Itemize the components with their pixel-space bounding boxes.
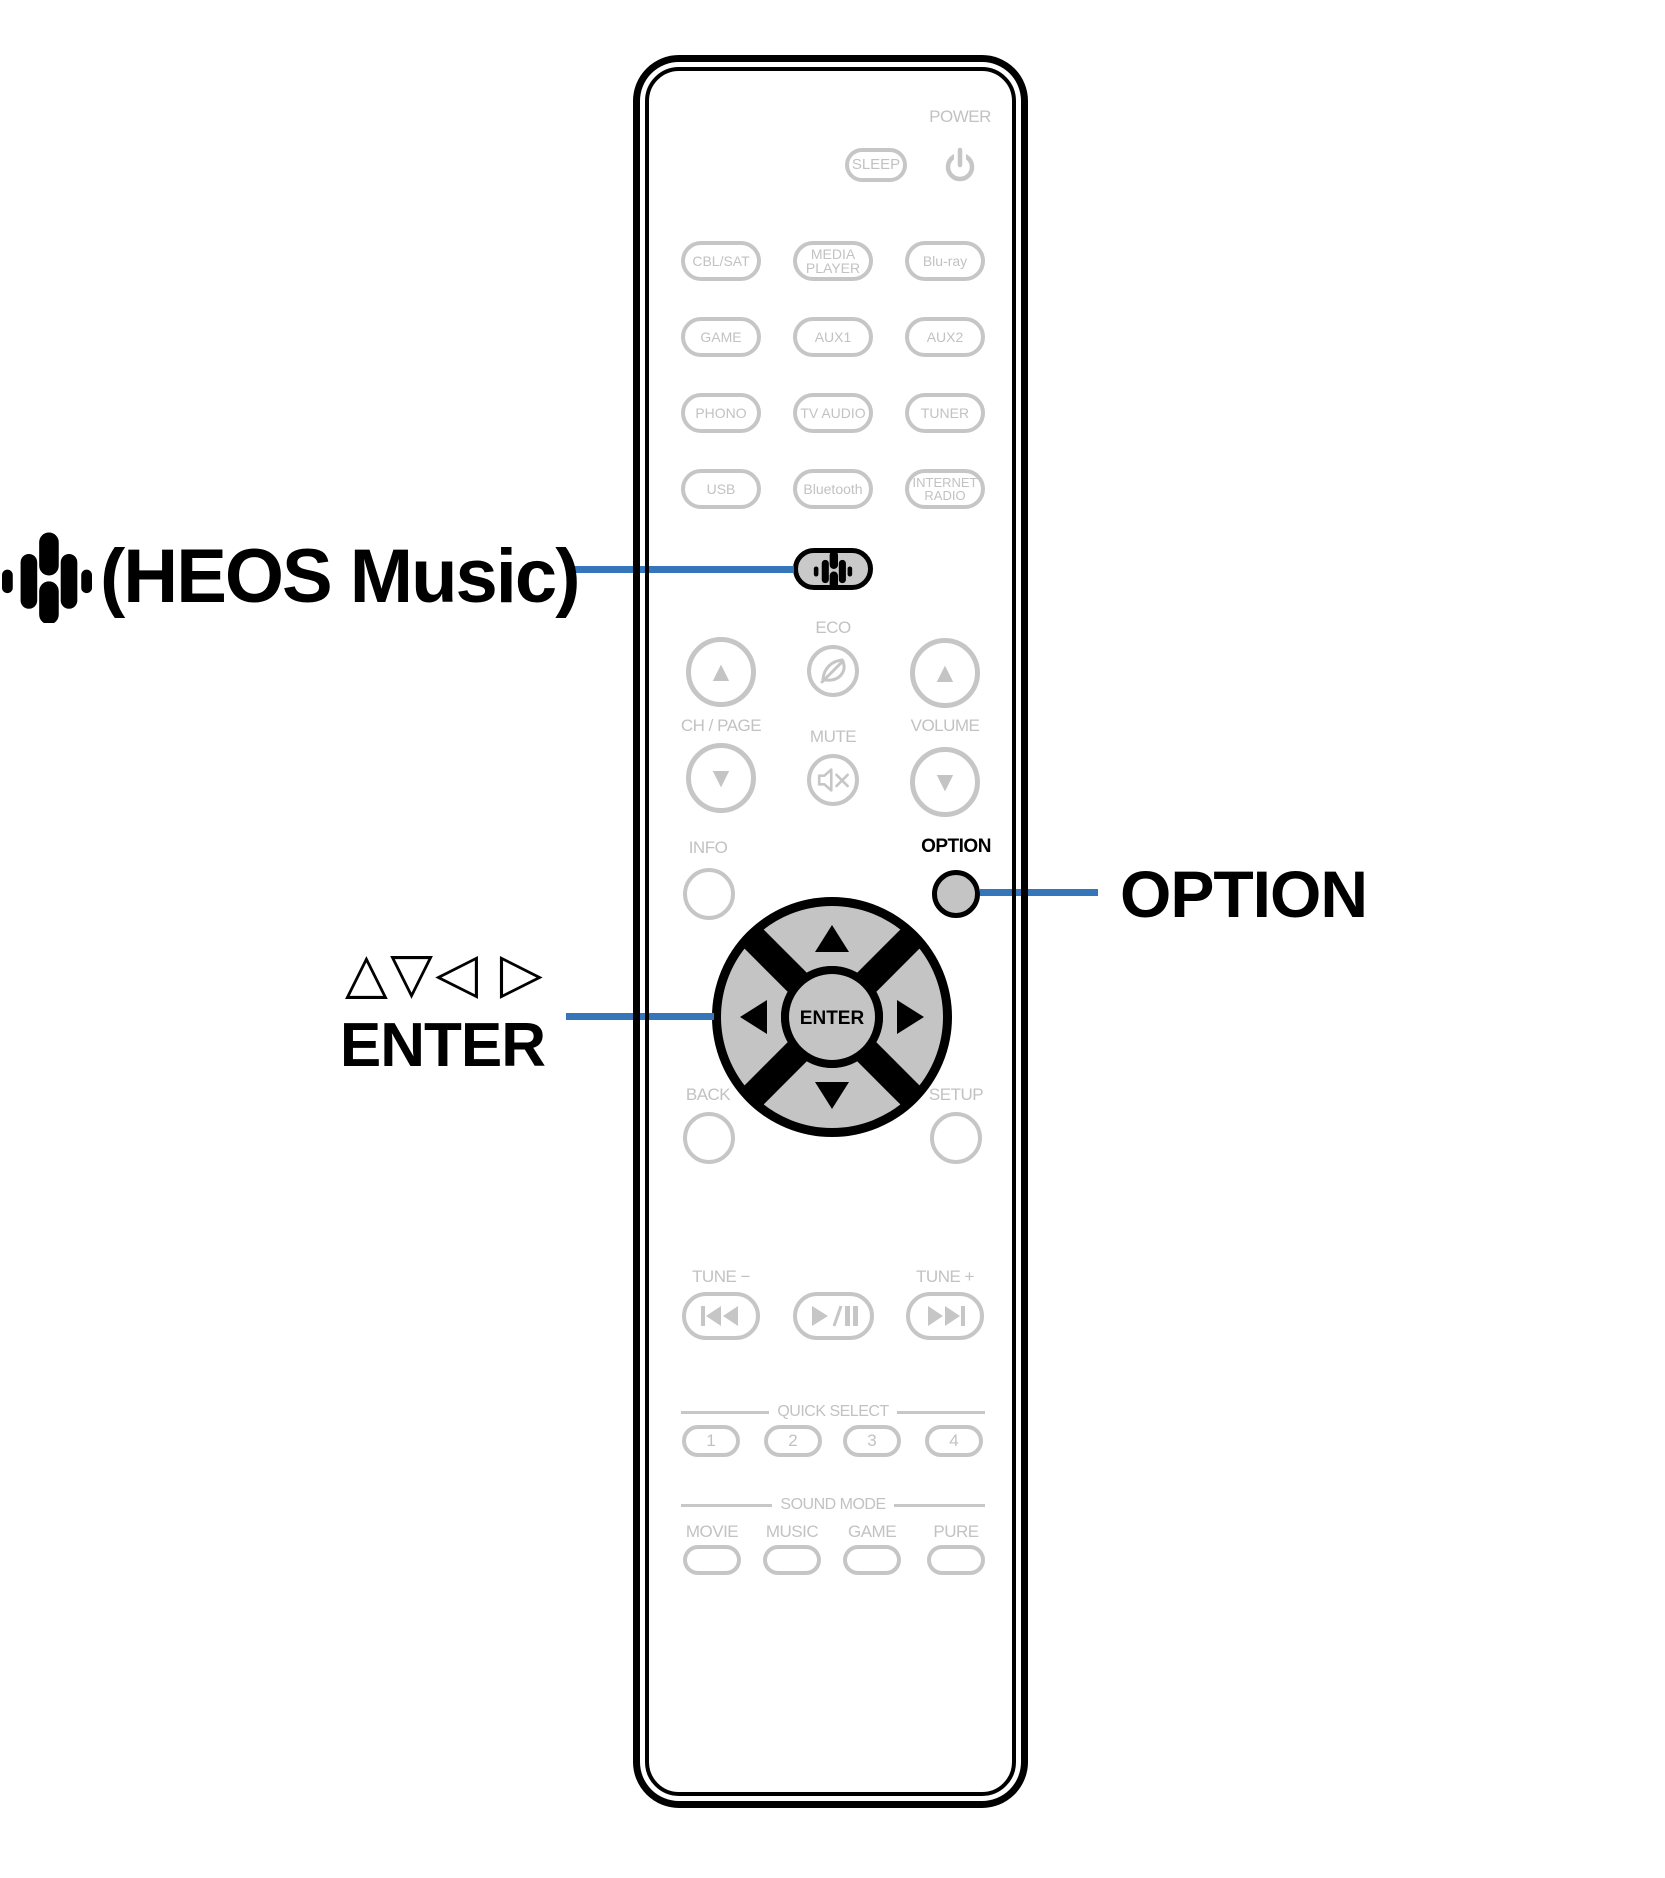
down-triangle-icon: ▼ bbox=[707, 764, 735, 792]
quick-select-3-label: 3 bbox=[867, 1432, 876, 1449]
source-label: CBL/SAT bbox=[692, 254, 749, 268]
up-triangle-icon: ▲ bbox=[931, 659, 959, 687]
divider-line bbox=[897, 1411, 985, 1414]
sleep-button: SLEEP bbox=[845, 148, 907, 182]
tune-down-label: TUNE − bbox=[692, 1267, 750, 1287]
quick-select-2-label: 2 bbox=[788, 1432, 797, 1449]
skip-back-icon bbox=[699, 1305, 743, 1327]
setup-button bbox=[930, 1112, 982, 1164]
callout-line-enter bbox=[566, 1013, 714, 1020]
heos-music-icon bbox=[810, 549, 856, 589]
mute-button bbox=[807, 754, 859, 806]
eco-label: ECO bbox=[815, 618, 850, 638]
source-label: USB bbox=[707, 482, 736, 496]
back-label: BACK bbox=[686, 1085, 730, 1105]
sleep-label: SLEEP bbox=[852, 157, 900, 172]
mute-label: MUTE bbox=[810, 727, 856, 747]
enter-button-label: ENTER bbox=[800, 1008, 865, 1029]
source-button-aux2: AUX2 bbox=[905, 317, 985, 357]
source-button-media-player: MEDIA PLAYER bbox=[793, 241, 873, 281]
source-button-usb: USB bbox=[681, 469, 761, 509]
quick-select-1-label: 1 bbox=[706, 1432, 715, 1449]
tune-up-label: TUNE + bbox=[916, 1267, 974, 1287]
source-button-aux1: AUX1 bbox=[793, 317, 873, 357]
volume-down-button: ▼ bbox=[910, 747, 980, 817]
volume-label: VOLUME bbox=[911, 716, 980, 736]
sound-mode-title: SOUND MODE bbox=[780, 1496, 885, 1514]
quick-select-title: QUICK SELECT bbox=[777, 1403, 888, 1421]
source-button-blu-ray: Blu-ray bbox=[905, 241, 985, 281]
source-button-phono: PHONO bbox=[681, 393, 761, 433]
power-icon bbox=[939, 144, 981, 186]
game-button bbox=[843, 1545, 901, 1575]
pure-label: PURE bbox=[933, 1522, 978, 1542]
volume-up-button: ▲ bbox=[910, 638, 980, 708]
callout-line-heos bbox=[566, 566, 794, 573]
source-label: TV AUDIO bbox=[800, 406, 865, 420]
channel-up-button: ▲ bbox=[686, 637, 756, 707]
game-label: GAME bbox=[848, 1522, 896, 1542]
eco-button bbox=[807, 645, 859, 697]
ch-page-label: CH / PAGE bbox=[681, 716, 761, 736]
divider-line bbox=[681, 1411, 769, 1414]
skip-back-button bbox=[682, 1292, 760, 1340]
sound-mode-header: SOUND MODE bbox=[681, 1496, 985, 1514]
mute-speaker-icon bbox=[814, 763, 852, 797]
quick-select-4-button: 4 bbox=[925, 1425, 983, 1457]
source-button-tuner: TUNER bbox=[905, 393, 985, 433]
quick-select-4-label: 4 bbox=[949, 1432, 958, 1449]
source-button-bluetooth: Bluetooth bbox=[793, 469, 873, 509]
manual-page: POWER SLEEP CBL/SAT MEDIA PLAYER Blu-ray… bbox=[0, 0, 1665, 1878]
source-label: MEDIA PLAYER bbox=[797, 247, 869, 276]
divider-line bbox=[681, 1504, 772, 1507]
quick-select-header: QUICK SELECT bbox=[681, 1403, 985, 1421]
source-label: AUX2 bbox=[927, 330, 964, 344]
quick-select-1-button: 1 bbox=[682, 1425, 740, 1457]
movie-button bbox=[683, 1545, 741, 1575]
down-triangle-icon: ▼ bbox=[931, 768, 959, 796]
music-label: MUSIC bbox=[766, 1522, 818, 1542]
music-button bbox=[763, 1545, 821, 1575]
movie-label: MOVIE bbox=[686, 1522, 738, 1542]
up-triangle-icon: ▲ bbox=[707, 658, 735, 686]
skip-forward-button bbox=[906, 1292, 984, 1340]
source-buttons: CBL/SAT MEDIA PLAYER Blu-ray GAME AUX1 A… bbox=[681, 241, 985, 509]
back-button bbox=[683, 1112, 735, 1164]
source-label: Bluetooth bbox=[803, 482, 862, 496]
callout-line-option bbox=[980, 889, 1098, 896]
remote-control: POWER SLEEP CBL/SAT MEDIA PLAYER Blu-ray… bbox=[633, 55, 1028, 1808]
source-button-internet-radio: INTERNET RADIO bbox=[905, 469, 985, 509]
play-pause-button bbox=[793, 1292, 874, 1340]
source-button-game: GAME bbox=[681, 317, 761, 357]
source-button-cbl-sat: CBL/SAT bbox=[681, 241, 761, 281]
channel-down-button: ▼ bbox=[686, 743, 756, 813]
source-label: AUX1 bbox=[815, 330, 852, 344]
divider-line bbox=[894, 1504, 985, 1507]
source-label: Blu-ray bbox=[923, 254, 967, 268]
source-button-tv-audio: TV AUDIO bbox=[793, 393, 873, 433]
option-callout-label: OPTION bbox=[1120, 850, 1367, 938]
cursor-triangles-label: △▽◁ ▷ bbox=[340, 942, 545, 1006]
setup-label: SETUP bbox=[929, 1085, 983, 1105]
option-label: OPTION bbox=[921, 836, 991, 858]
power-button bbox=[939, 144, 981, 186]
heos-music-button bbox=[793, 548, 873, 590]
source-label: GAME bbox=[700, 330, 741, 344]
quick-select-2-button: 2 bbox=[764, 1425, 822, 1457]
source-label: PHONO bbox=[695, 406, 746, 420]
cursor-pad: ENTER bbox=[712, 897, 952, 1137]
source-label: INTERNET RADIO bbox=[909, 476, 981, 503]
pure-button bbox=[927, 1545, 985, 1575]
source-label: TUNER bbox=[921, 406, 969, 420]
quick-select-3-button: 3 bbox=[843, 1425, 901, 1457]
play-pause-icon bbox=[810, 1304, 858, 1328]
enter-callout-label: ENTER bbox=[340, 1012, 545, 1080]
info-label: INFO bbox=[689, 838, 728, 858]
skip-forward-icon bbox=[923, 1305, 967, 1327]
leaf-icon bbox=[815, 653, 851, 689]
power-label: POWER bbox=[929, 107, 991, 127]
heos-music-callout-label: (HEOS Music) bbox=[100, 534, 579, 620]
heos-music-callout-icon bbox=[2, 528, 92, 623]
cursor-callout: △▽◁ ▷ ENTER bbox=[340, 942, 545, 1080]
